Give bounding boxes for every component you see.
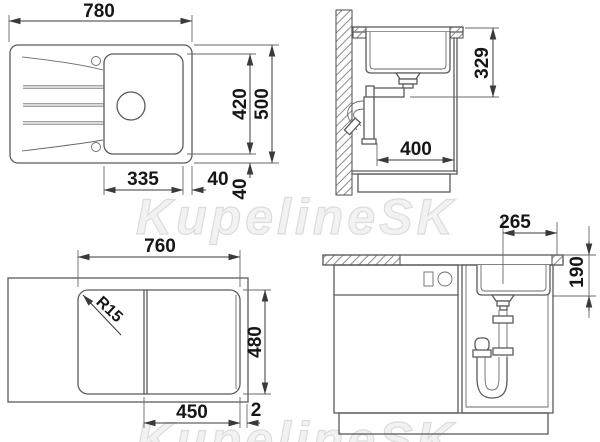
bowl-front-outer [477,265,550,295]
worktop-hatch-right [552,255,563,265]
dim-label-cutout-width: 760 [144,236,176,257]
dim-bowl-width: 335 40 [104,166,229,195]
dim-label-side-offset: 40 [207,169,228,190]
groove-line [23,122,104,124]
cabinet-plinth [339,413,548,434]
dim-overall-width: 780 [9,1,192,42]
cabinet-side [454,38,457,174]
worktop-hatch-left [353,27,366,38]
dim-label-bowl-width: 335 [127,169,159,190]
dim-label-overall-width: 780 [83,1,115,22]
worktop-section [352,27,463,32]
dim-label-edge-offset: 2 [251,400,262,421]
dim-label-bowl-section-width: 450 [176,402,208,423]
drain-tailpiece [500,306,507,310]
dim-label-corner-radius: R15 [93,293,126,326]
horizontal-pipe [372,88,404,97]
dim-label-cutout-depth: 480 [245,326,266,358]
side-section-view: 329 400 [336,10,499,195]
siphon-front [473,310,513,398]
cutout-view: R15 760 480 450 [8,236,271,428]
trap-riser-nut [473,350,491,357]
drain-fitting-front [492,295,514,310]
cutout-divider [144,290,147,394]
union-nut-lower [493,348,513,355]
trap-cleanout-cap [475,338,489,351]
drain-fitting [396,73,420,88]
bowl-section-outer [366,32,450,73]
drain-nut [399,79,417,84]
tap-hole-bottom [92,143,101,152]
dim-cutout-depth: 480 [243,290,271,394]
siphon-pipes [344,86,404,144]
drain-flange [492,295,514,301]
drainboard-grooves [22,57,104,151]
cabinet-plinth [358,174,450,192]
technical-drawing-svg: 780 420 [0,0,600,442]
pipe-end-cap [362,139,376,144]
vertical-pipe [364,97,374,143]
dim-edge-offset: 2 [227,400,261,428]
dim-drain-to-edge: 265 [499,212,557,256]
groove-line [23,86,104,88]
worktop-hatch-left [323,255,400,265]
drain-nut [497,301,509,306]
handle-rect [424,272,433,286]
sink-bowl [104,54,183,154]
dim-label-drain-offset: 400 [400,139,432,160]
dim-label-drain-to-edge: 265 [499,212,531,233]
dim-bowl-depth-front: 190 [552,226,596,318]
trap-u-outer [477,357,507,398]
dim-drain-offset: 400 [377,139,454,166]
dim-bowl-depth: 420 [187,54,256,154]
front-section-view: 265 190 [323,212,596,434]
dim-label-drain-height: 329 [472,47,493,79]
dim-label-overall-depth: 500 [252,88,273,120]
dim-label-bowl-depth-front: 190 [567,256,588,288]
sink-top-view: 780 420 [9,1,279,200]
groove-line [22,57,103,70]
drawing-canvas: KupelineSK KupelineSK 780 [0,0,600,442]
groove-line [23,104,104,106]
drain-flange [396,73,420,79]
groove-line [22,140,103,151]
dim-label-bowl-depth: 420 [230,88,251,120]
dim-label-bottom-offset: 40 [230,178,251,199]
corner-radius-callout: R15 [83,293,126,335]
cabinet-left [334,265,458,413]
dim-bottom-offset: 40 [230,163,251,200]
knob-circle [438,272,452,286]
worktop-outline [8,278,248,402]
wall-section [336,10,352,195]
drain-hole [117,92,145,120]
dim-cutout-width: 760 [78,236,240,287]
union-nut-upper [493,316,513,323]
worktop-hatch-right [450,27,463,38]
tap-hole-top [92,57,101,66]
